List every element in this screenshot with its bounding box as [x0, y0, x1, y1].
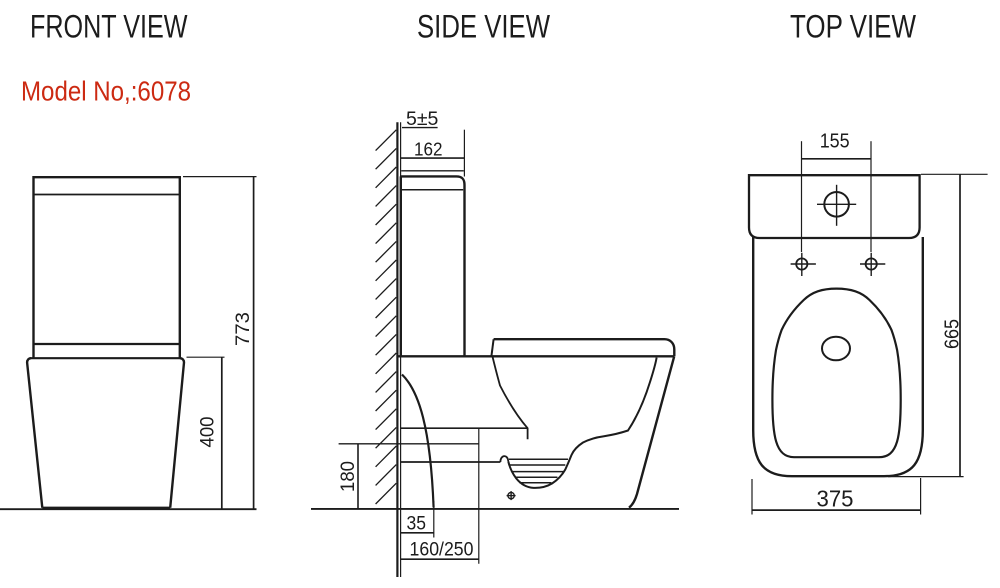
svg-text:FRONT VIEW: FRONT VIEW	[30, 9, 188, 45]
svg-text:180: 180	[338, 461, 359, 492]
svg-text:TOP VIEW: TOP VIEW	[790, 8, 917, 44]
svg-text:SIDE VIEW: SIDE VIEW	[417, 8, 551, 44]
svg-text:375: 375	[817, 486, 854, 512]
svg-text:Model No,:6078: Model No,:6078	[21, 75, 191, 106]
svg-text:773: 773	[232, 312, 254, 346]
svg-text:155: 155	[820, 131, 850, 153]
svg-text:162: 162	[414, 138, 443, 159]
svg-text:160/250: 160/250	[410, 539, 474, 560]
svg-text:35: 35	[407, 513, 427, 534]
svg-text:400: 400	[198, 417, 219, 448]
svg-text:5±5: 5±5	[406, 108, 439, 130]
svg-text:665: 665	[942, 319, 964, 349]
